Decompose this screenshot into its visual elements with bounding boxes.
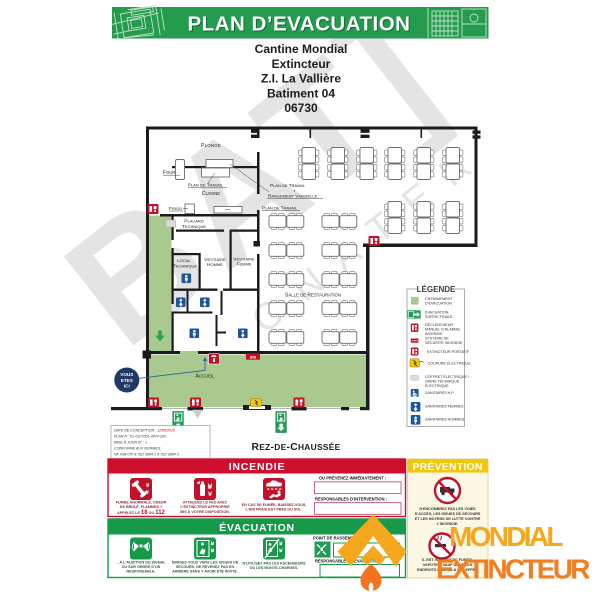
svg-text:N’ENCOMBREZ PAS LES VOIES: N’ENCOMBREZ PAS LES VOIES xyxy=(419,507,476,511)
svg-text:DATE DE CONCEPTION : 11/06/202: DATE DE CONCEPTION : 11/06/2020 xyxy=(114,429,175,433)
svg-text:SANITAIRES FEMMES: SANITAIRES FEMMES xyxy=(425,404,464,408)
svg-text:ICI: ICI xyxy=(124,383,130,388)
svg-text:D’ACCÈS, LES ISSUES DE SECOURS: D’ACCÈS, LES ISSUES DE SECOURS xyxy=(415,511,481,516)
svg-text:EXTINCTEUR: EXTINCTEUR xyxy=(436,554,590,585)
svg-text:SÉCURITÉ INCENDIE: SÉCURITÉ INCENDIE xyxy=(425,340,463,345)
svg-text:ARRIÈRE SANS Y AVOIR ÉTÉ INVIT: ARRIÈRE SANS Y AVOIR ÉTÉ INVITÉ. xyxy=(172,569,238,574)
svg-text:Z.I. La Vallière: Z.I. La Vallière xyxy=(261,72,341,86)
svg-text:RESPONSABLES D’INTERVENTION :: RESPONSABLES D’INTERVENTION : xyxy=(315,497,387,502)
svg-text:N’UTILISEZ PAS LES ASCENSEURS: N’UTILISEZ PAS LES ASCENSEURS xyxy=(242,562,306,566)
svg-text:INCENDIE: INCENDIE xyxy=(229,461,286,473)
svg-text:MANUEL D’ALARME: MANUEL D’ALARME xyxy=(425,328,460,332)
svg-text:MIS À VOTRE DISPOSITION.: MIS À VOTRE DISPOSITION. xyxy=(180,509,230,514)
svg-text:RESPONSABLE.: RESPONSABLE. xyxy=(126,570,155,574)
svg-text:GAINE TECHNIQUE: GAINE TECHNIQUE xyxy=(425,380,460,384)
svg-text:Cantine Mondial: Cantine Mondial xyxy=(255,42,348,56)
svg-text:SSI: SSI xyxy=(250,354,256,359)
svg-text:COUPURE ÉLECTRIQUE: COUPURE ÉLECTRIQUE xyxy=(428,360,472,365)
svg-text:OU PRÉVENEZ IMMÉDIATEMENT :: OU PRÉVENEZ IMMÉDIATEMENT : xyxy=(319,476,386,481)
svg-text:CHEMINEMENT: CHEMINEMENT xyxy=(425,297,453,301)
svg-text:PLAN DE TRAVAIL: PLAN DE TRAVAIL xyxy=(262,206,298,211)
svg-text:MISE À JOUR N° : 1: MISE À JOUR N° : 1 xyxy=(114,441,147,445)
svg-text:PRÉVENTION: PRÉVENTION xyxy=(412,460,482,473)
svg-text:REZ-DE-CHAUSSÉE: REZ-DE-CHAUSSÉE xyxy=(251,441,340,453)
svg-text:OU SUR ORDRE D’UN: OU SUR ORDRE D’UN xyxy=(122,565,161,569)
svg-text:OU LES MONTE-CHARGES.: OU LES MONTE-CHARGES. xyxy=(250,566,299,570)
svg-text:...À L’AUDITION DU SIGNAL: ...À L’AUDITION DU SIGNAL xyxy=(117,560,167,565)
svg-text:06730: 06730 xyxy=(284,101,318,115)
svg-text:INCENDIE: INCENDIE xyxy=(425,332,443,336)
svg-text:EN CAS DE FUMÉE, BAISSEZ-VOUS,: EN CAS DE FUMÉE, BAISSEZ-VOUS, xyxy=(242,502,307,507)
svg-text:Batiment 04: Batiment 04 xyxy=(267,86,335,100)
svg-text:D’ÉVACUATION: D’ÉVACUATION xyxy=(425,301,452,306)
svg-text:Extincteur: Extincteur xyxy=(272,57,331,71)
svg-text:NF X08-070 & ISO 3864-1 & ISO: NF X08-070 & ISO 3864-1 & ISO 3864-3 xyxy=(114,453,179,457)
svg-text:LÉGENDE: LÉGENDE xyxy=(417,285,456,294)
svg-text:VOUS: VOUS xyxy=(120,372,133,377)
svg-text:L’AIR FRAIS EST PRÈS DU SOL.: L’AIR FRAIS EST PRÈS DU SOL. xyxy=(246,507,303,512)
svg-text:ÉVACUATION: ÉVACUATION xyxy=(219,521,295,534)
svg-text:SECOURS. NE REVENEZ PAS EN: SECOURS. NE REVENEZ PAS EN xyxy=(176,565,235,569)
svg-text:ETES: ETES xyxy=(121,378,133,383)
svg-text:PLAN D’EVACUATION: PLAN D’EVACUATION xyxy=(188,13,411,36)
svg-text:ÉVACUATION: ÉVACUATION xyxy=(425,310,449,315)
svg-text:PLAN DE TRAVAIL: PLAN DE TRAVAIL xyxy=(270,183,306,188)
svg-text:ATTAQUEZ LE FEU AVEC: ATTAQUEZ LE FEU AVEC xyxy=(183,501,228,505)
svg-text:PLAN DE TRAVAIL: PLAN DE TRAVAIL xyxy=(188,183,224,188)
svg-text:ÉLECTRIQUE: ÉLECTRIQUE xyxy=(425,383,449,388)
svg-text:FUMÉE ANORMALE, ODEUR: FUMÉE ANORMALE, ODEUR xyxy=(116,500,167,505)
svg-text:EXTINCTEUR PORTATIF: EXTINCTEUR PORTATIF xyxy=(427,350,470,354)
svg-text:DE BRÛLÉ, FLAMMES ?: DE BRÛLÉ, FLAMMES ? xyxy=(120,504,163,509)
svg-text:RANGEMENT VAISSELLE: RANGEMENT VAISSELLE xyxy=(268,194,318,199)
svg-text:COFFRET ÉLECTRIQUE /: COFFRET ÉLECTRIQUE / xyxy=(425,374,470,379)
svg-text:MONDIAL: MONDIAL xyxy=(449,521,563,552)
svg-text:L’EXTINCTEUR APPROPRIÉ: L’EXTINCTEUR APPROPRIÉ xyxy=(180,504,230,509)
svg-text:DIRIGEZ-VOUS VERS LES ISSUES D: DIRIGEZ-VOUS VERS LES ISSUES DE xyxy=(172,561,239,565)
svg-text:SORTIE FINALE: SORTIE FINALE xyxy=(425,315,453,319)
svg-text:PLAN N° TO-CE/7001-4074-102: PLAN N° TO-CE/7001-4074-102 xyxy=(114,435,166,439)
svg-text:CONFORME AUX NORMES:: CONFORME AUX NORMES: xyxy=(114,447,161,451)
svg-text:SANITAIRES HOMMES: SANITAIRES HOMMES xyxy=(425,417,465,421)
svg-text:SYSTÈME DE: SYSTÈME DE xyxy=(425,336,449,341)
svg-text:DÉCLENCHEUR: DÉCLENCHEUR xyxy=(425,322,453,327)
svg-text:SANITAIRES H.P: SANITAIRES H.P xyxy=(425,391,454,395)
